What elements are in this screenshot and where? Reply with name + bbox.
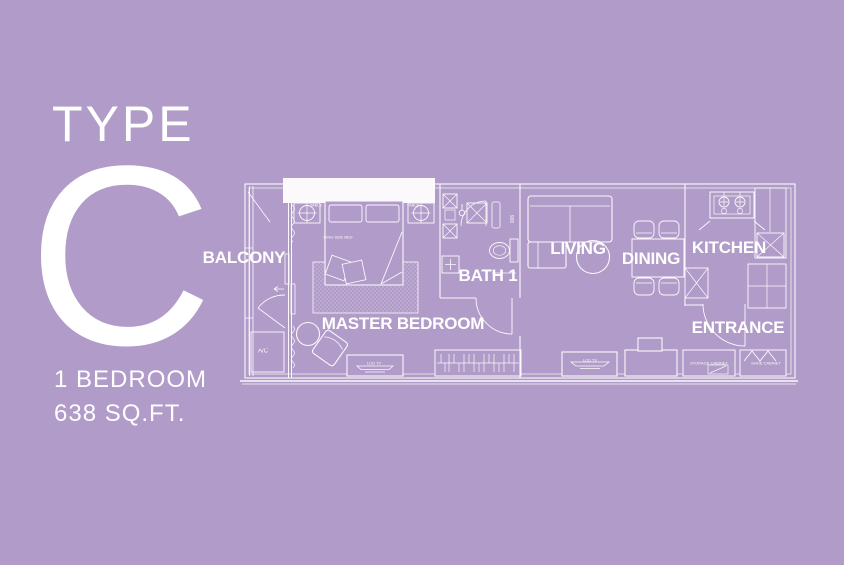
lcd-tv-label-bedroom: LCD TV (367, 362, 381, 367)
room-label-master-bedroom: MASTER BEDROOM (322, 314, 484, 334)
room-label-bath-1: BATH 1 (459, 266, 518, 286)
shower (459, 201, 500, 228)
toilet (490, 239, 519, 262)
type-letter: C (28, 128, 213, 384)
stove (710, 192, 754, 218)
bedside-table-label-left: BEDSIDE TABLE (305, 198, 327, 207)
shower-dimension-label: 900 (507, 215, 513, 223)
console-cabinet (625, 338, 677, 376)
balcony-fixtures (245, 184, 295, 378)
floorplan-page: TYPE C 1 BEDROOM 638 SQ.FT. (0, 0, 844, 565)
wardrobe (435, 350, 521, 376)
room-label-living: LIVING (550, 239, 605, 259)
room-label-balcony: BALCONY (203, 248, 286, 268)
room-label-kitchen: KITCHEN (692, 238, 766, 258)
bedroom-chair (311, 329, 348, 367)
living-fixtures (528, 196, 677, 376)
side-table (297, 323, 320, 346)
tv-cabinet-living (562, 352, 617, 376)
bedside-table-label-right: BEDSIDE TABLE (402, 198, 424, 207)
shoe-cabinet-label: SHOE CABINET (751, 362, 781, 367)
storage-cabinet-label: STORAGE CABINET (690, 362, 728, 367)
bedroom-count: 1 BEDROOM (54, 366, 207, 394)
room-label-dining: DINING (622, 249, 680, 269)
room-label-entrance: ENTRANCE (692, 318, 785, 338)
bath-sink (442, 256, 459, 273)
ac-label: A/C (258, 349, 268, 356)
lcd-tv-label-living: LCD TV (583, 359, 597, 364)
floor-plan-drawing (240, 176, 800, 390)
king-bed-label: KING SIZE BED (323, 236, 352, 241)
kitchen-sink (685, 268, 708, 298)
area-label: 638 SQ.FT. (54, 400, 185, 428)
